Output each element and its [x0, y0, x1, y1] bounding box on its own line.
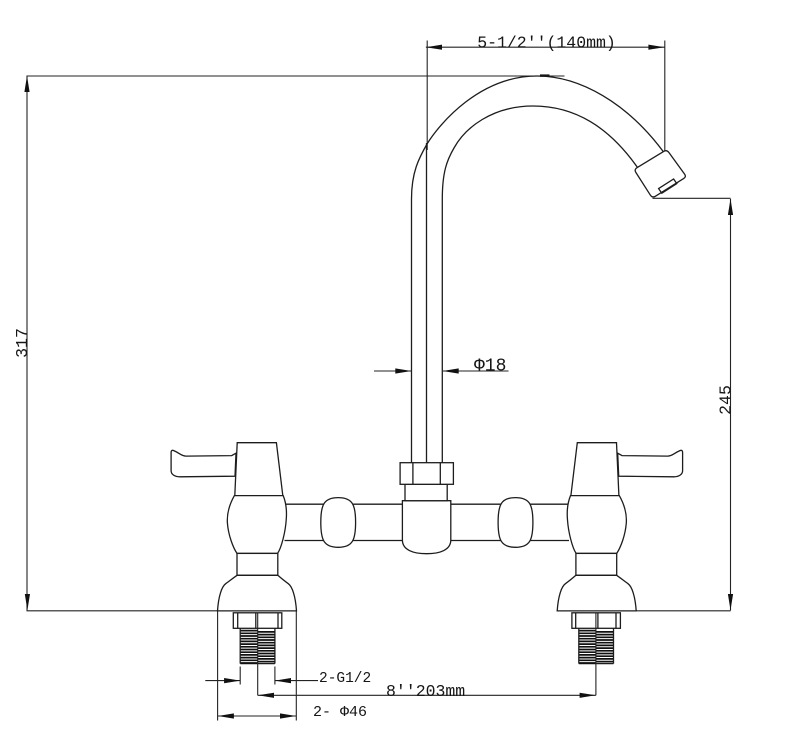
- svg-text:Φ18: Φ18: [474, 357, 506, 377]
- svg-text:317: 317: [13, 328, 32, 358]
- svg-text:2- Φ46: 2- Φ46: [313, 704, 367, 721]
- svg-text:2-G1/2: 2-G1/2: [319, 671, 371, 687]
- svg-text:8''203mm: 8''203mm: [386, 682, 465, 701]
- svg-text:5-1/2''(140mm): 5-1/2''(140mm): [477, 34, 616, 53]
- svg-text:245: 245: [717, 385, 736, 415]
